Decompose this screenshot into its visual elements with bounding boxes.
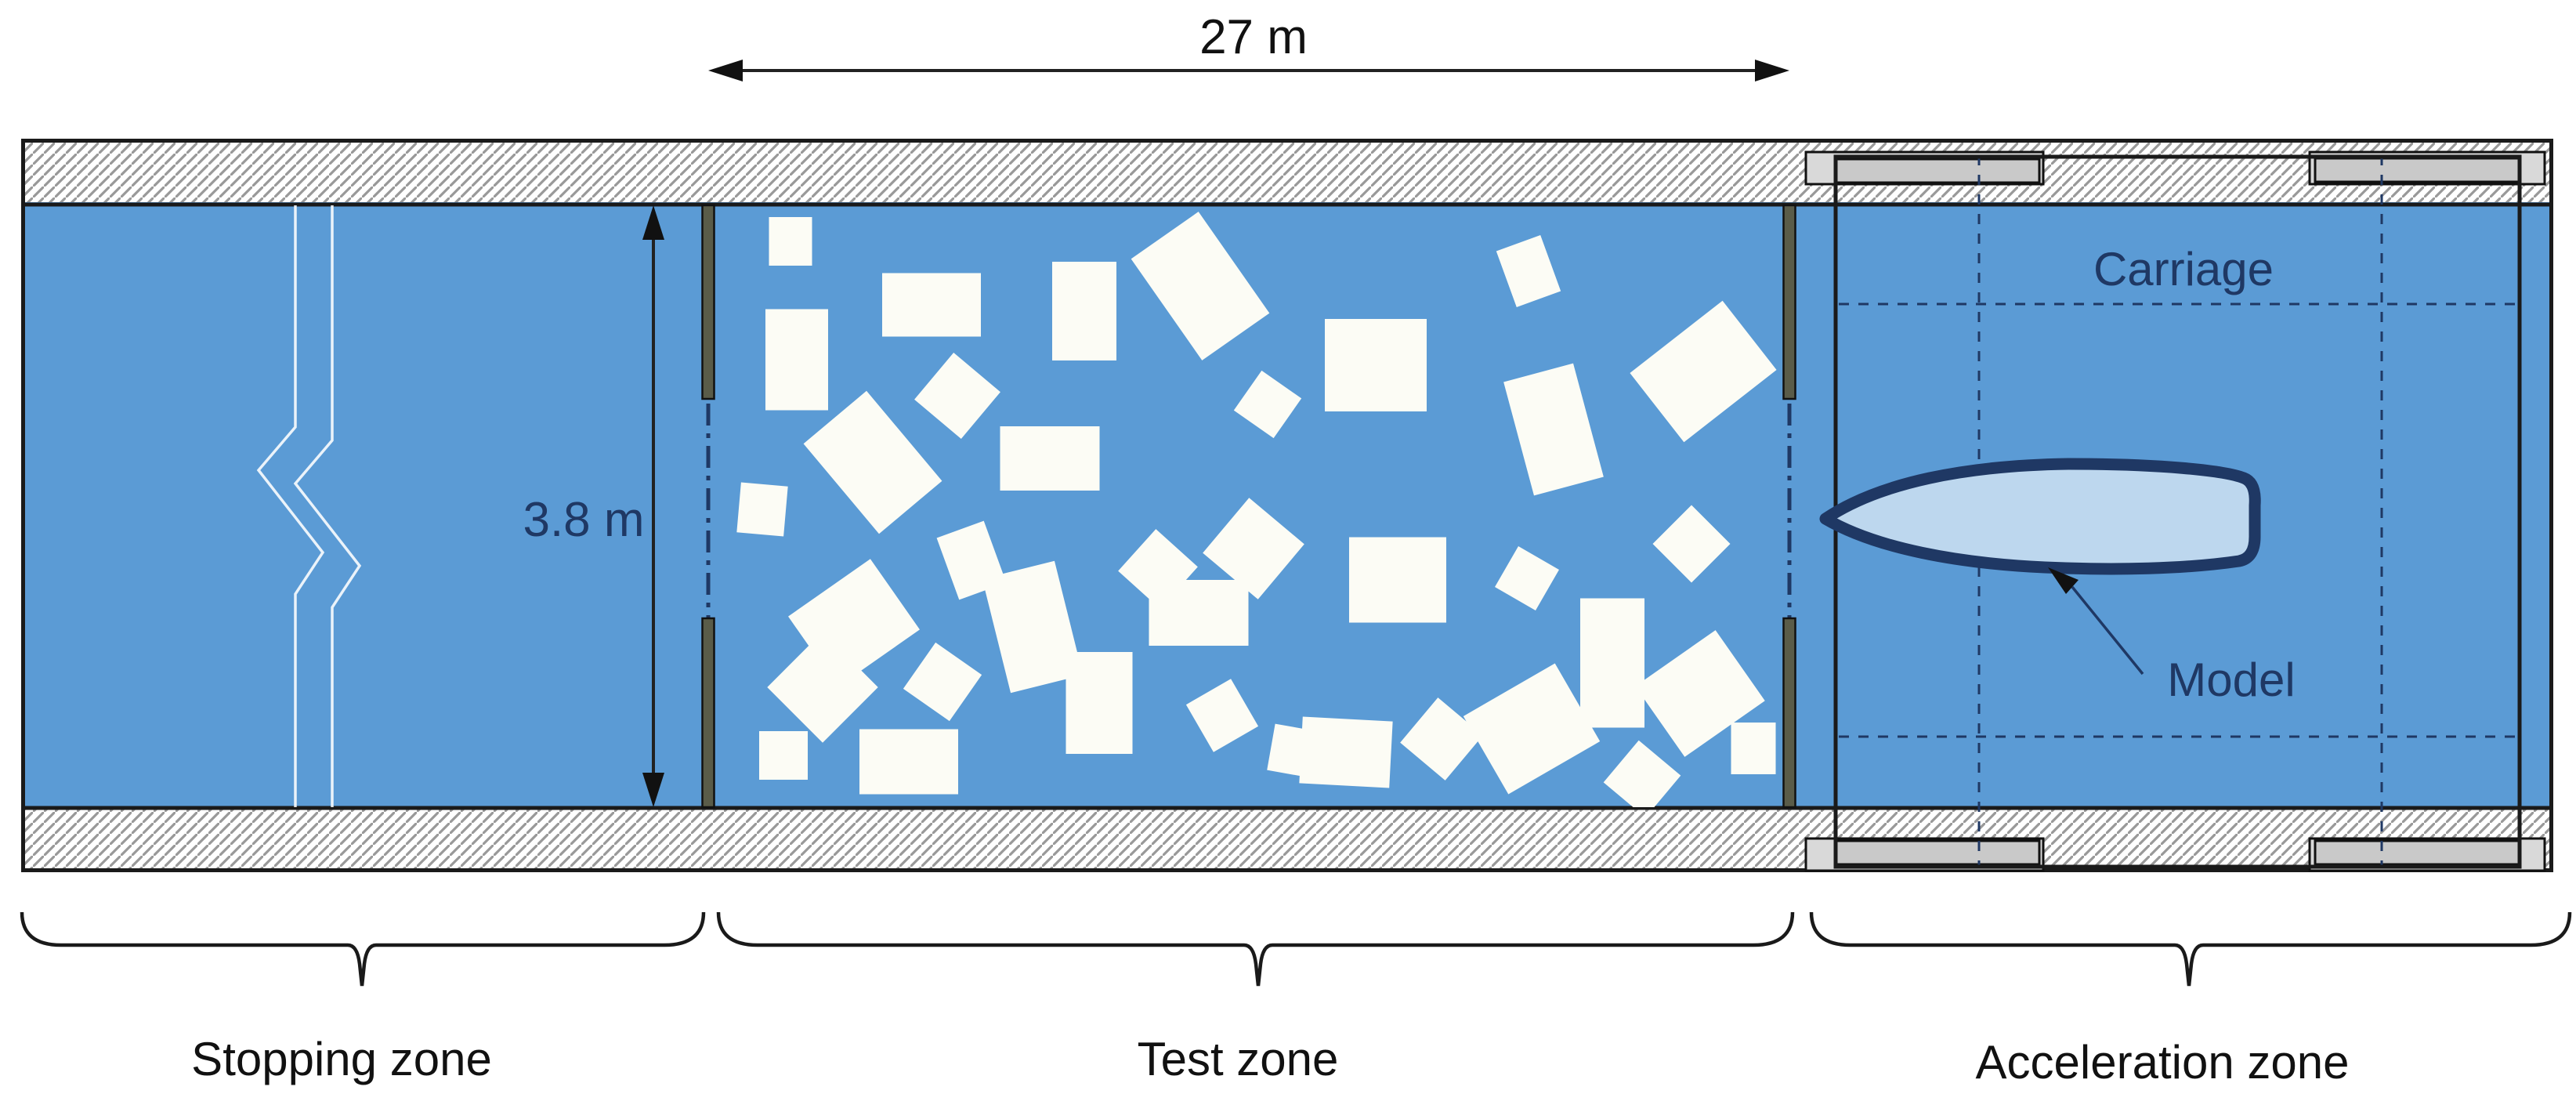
ice-floe [759,731,808,780]
gate-right-top-bar [1784,205,1796,399]
length-arrowhead-right [1755,60,1789,81]
ice-floe [882,273,981,337]
zone-label-acceleration: Acceleration zone [1976,1039,2350,1086]
carriage-label: Carriage [2093,246,2274,293]
zone-braces [22,912,2570,986]
model-label: Model [2167,657,2295,704]
carriage-pad-top-left-inner [1836,159,2039,183]
tank-drawing [0,0,2576,1112]
carriage-pad-bottom-right-inner [2315,841,2519,864]
zone-label-test: Test zone [1138,1036,1339,1083]
length-dimension-label: 27 m [1199,13,1308,62]
length-arrowhead-left [708,60,743,81]
ice-tank-plan-diagram: 27 m 3.8 m Carriage Model Stopping zone … [0,0,2576,1112]
ice-floe [1299,717,1392,788]
gate-left-bottom-bar [703,618,715,807]
zone-label-stopping: Stopping zone [191,1036,492,1083]
ice-floe [1325,319,1427,411]
brace-stopping-zone [22,912,704,986]
ice-floe [859,730,958,795]
brace-acceleration-zone [1811,912,2570,986]
ice-floe [1580,599,1644,728]
carriage-pad-bottom-left-inner [1836,841,2039,864]
ice-floe [769,217,812,266]
ice-floe [1066,652,1133,754]
ice-floe [1149,580,1249,646]
brace-test-zone [718,912,1793,986]
width-dimension-label: 3.8 m [523,496,644,545]
bottom-wall [25,810,2552,869]
gate-left-top-bar [703,205,715,399]
carriage-pad-top-right-inner [2315,158,2519,182]
top-wall [25,143,2552,202]
ice-floe [1000,426,1100,491]
ice-floe [1349,538,1446,623]
ice-floe [736,483,787,537]
ice-floe [765,310,828,411]
ice-floe [1731,723,1776,774]
gate-right-bottom-bar [1784,618,1796,807]
ice-floe [1052,262,1116,360]
